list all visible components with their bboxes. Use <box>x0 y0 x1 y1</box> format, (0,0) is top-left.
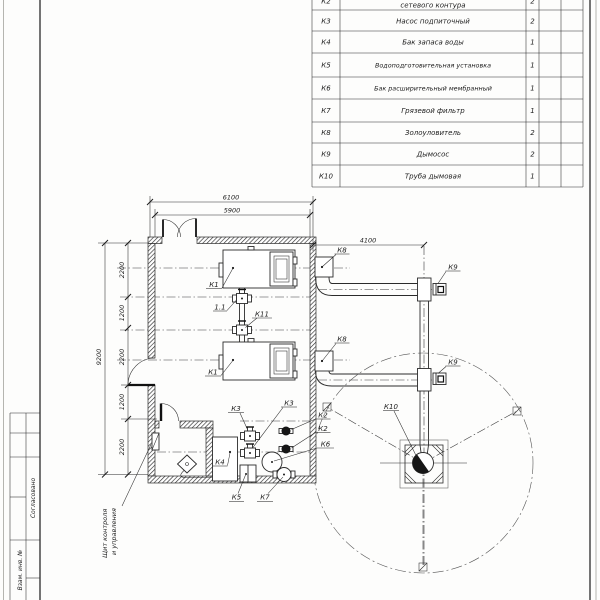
table-row: К8 Золоуловитель 2 <box>321 129 535 137</box>
dim-outer-width: 6100 <box>223 194 240 202</box>
row-pos: К7 <box>321 107 331 115</box>
row-pos: К5 <box>321 62 331 70</box>
equipment-table: К2 сетевого контура 2 К3 Насос подпиточн… <box>312 0 583 187</box>
label-text: 1.1 <box>214 304 225 312</box>
boiler-house-plan-drawing: Согласовано Взам. инв. № К2 сетевого кон… <box>0 0 600 600</box>
row-qty: 2 <box>530 18 535 26</box>
table-row: К10 Труба дымовая 1 <box>319 173 535 181</box>
label-text: К3 <box>231 405 240 413</box>
double-door-top <box>163 219 196 238</box>
row-name: Дымосос <box>416 151 450 159</box>
label-text: К8 <box>337 336 347 344</box>
row-qty: 1 <box>530 39 534 47</box>
partition-stub <box>155 421 159 428</box>
dimensions: 6100 5900 4100 9200 2200 1200 2200 1200 … <box>95 194 427 478</box>
stamp-inv-label: Взам. инв. № <box>17 550 24 591</box>
label-k3-1: К3 <box>228 405 248 430</box>
control-panel <box>152 433 159 450</box>
pump-k3-2 <box>241 444 260 458</box>
note-control-panel: Щит контроля и управления <box>101 445 151 559</box>
smoke-exhauster-k9-2 <box>433 373 446 385</box>
label-text: К11 <box>255 311 269 319</box>
row-qty: 2 <box>530 0 535 6</box>
table-row: К2 сетевого контура 2 <box>321 0 535 10</box>
unit-k5 <box>240 465 256 482</box>
row-name: сетевого контура <box>400 2 465 10</box>
dim-chain-1: 2200 <box>118 262 126 279</box>
row-qty: 1 <box>530 62 534 70</box>
partition-vertical <box>206 428 213 476</box>
row-pos: К9 <box>321 151 331 159</box>
pump-k3-1 <box>241 427 260 441</box>
label-k9-2: К9 <box>438 359 461 374</box>
table-row: К9 Дымосос 2 <box>321 151 535 159</box>
table-row: К5 Водоподготовительная установка 1 <box>321 62 534 70</box>
dim-flue-offset: 4100 <box>360 237 377 245</box>
label-text: К2 <box>318 412 328 420</box>
row-pos: К3 <box>321 18 330 26</box>
label-text: К1 <box>209 281 218 289</box>
door-partition <box>161 404 179 422</box>
row-pos: К8 <box>321 129 331 137</box>
row-pos: К6 <box>321 85 331 93</box>
label-text: К2 <box>318 425 328 433</box>
row-qty: 2 <box>530 129 535 137</box>
wall-top-left <box>148 237 162 244</box>
row-name: Золоуловитель <box>405 129 461 137</box>
note-line-2: и управления <box>110 508 118 555</box>
dim-chain-5: 2200 <box>118 439 126 456</box>
row-name: Насос подпиточный <box>396 18 470 26</box>
stamp-agreed-label: Согласовано <box>30 478 37 519</box>
dim-chain-3: 2200 <box>118 349 126 366</box>
partition-horizontal <box>180 421 213 428</box>
row-name: Водоподготовительная установка <box>375 62 491 70</box>
row-pos: К2 <box>321 0 331 6</box>
boiler-2 <box>219 339 297 381</box>
dim-chain-2: 1200 <box>118 305 126 322</box>
doors <box>128 219 196 422</box>
label-text: К8 <box>337 247 347 255</box>
label-text: К10 <box>384 403 398 411</box>
smoke-exhauster-k9-1 <box>433 284 446 296</box>
title-block-strip: Согласовано Взам. инв. № <box>10 413 40 600</box>
row-name: Труба дымовая <box>405 173 461 181</box>
label-text: К9 <box>448 264 458 272</box>
row-pos: К10 <box>319 173 333 181</box>
label-text: К9 <box>448 359 458 367</box>
drawing-sheet: Согласовано Взам. инв. № К2 сетевого кон… <box>0 0 600 600</box>
pump-k11 <box>233 321 252 335</box>
boiler-1 <box>219 247 297 289</box>
ash-collector-k8-1 <box>315 257 333 277</box>
sheet-frame <box>4 0 597 600</box>
label-text: К3 <box>284 400 293 408</box>
row-name: Бак расширительный мембранный <box>374 85 492 93</box>
row-qty: 1 <box>530 107 534 115</box>
dim-chain-4: 1200 <box>118 394 126 411</box>
wall-left-upper <box>148 244 155 359</box>
table-row: К6 Бак расширительный мембранный 1 <box>321 85 534 93</box>
chimney-k10 <box>380 440 467 488</box>
note-line-1: Щит контроля <box>101 509 109 558</box>
label-text: К1 <box>208 369 217 377</box>
flue-system <box>315 257 446 456</box>
label-k3-2: К3 <box>253 400 298 449</box>
dim-inner-width: 5900 <box>224 207 241 215</box>
label-k9-1: К9 <box>438 264 461 284</box>
ash-collector-k8-2 <box>315 351 333 371</box>
row-qty: 1 <box>530 173 534 181</box>
pump-k2-1 <box>279 427 293 436</box>
label-text: К5 <box>232 494 242 502</box>
dim-inner-depth: 9200 <box>95 349 103 366</box>
row-name: Бак запаса воды <box>402 39 464 47</box>
door-left-wall <box>128 358 155 385</box>
table-row: К7 Грязевой фильтр 1 <box>321 107 534 115</box>
label-text: К6 <box>321 441 331 449</box>
table-row: К4 Бак запаса воды 1 <box>321 39 534 47</box>
label-text: К4 <box>215 459 224 467</box>
row-qty: 2 <box>530 151 535 159</box>
label-text: К7 <box>260 494 270 502</box>
row-name: Грязевой фильтр <box>401 107 465 115</box>
row-pos: К4 <box>321 39 330 47</box>
wall-left-lower <box>148 385 155 476</box>
label-k11: К11 <box>246 311 273 328</box>
wall-top-right <box>197 237 316 244</box>
table-row: К3 Насос подпиточный 2 <box>321 18 535 26</box>
row-qty: 1 <box>530 85 534 93</box>
